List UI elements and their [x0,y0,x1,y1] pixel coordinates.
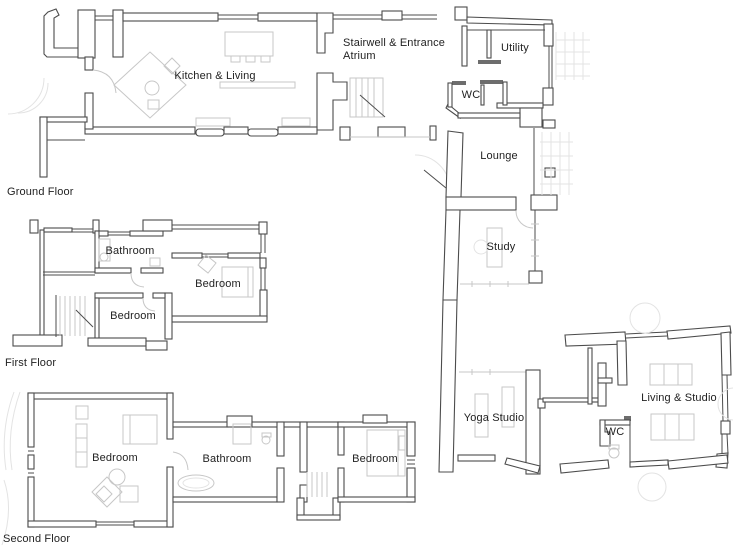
landscaping-hints [2,392,20,545]
floor-label-second: Second Floor [3,533,70,546]
room-label-utility: Utility [501,42,529,54]
second-floor-stairs [307,472,327,497]
room-label-stairwell-atrium: Stairwell & Entrance Atrium [343,37,445,63]
room-label-living-studio: Living & Studio [641,392,717,404]
room-label-wc-ground: WC [462,89,481,101]
room-label-kitchen-living: Kitchen & Living [174,70,255,82]
room-label-first-bedroom-small: Bedroom [110,310,156,322]
room-label-first-bedroom-main: Bedroom [195,278,241,290]
room-label-first-bathroom: Bathroom [106,245,155,257]
floorplan-drawing [0,0,733,560]
stairwell-label-line2: Atrium [343,50,445,63]
room-label-wc-studio: WC [606,426,625,438]
floor-label-first: First Floor [5,357,56,370]
first-floor-stairs [60,296,93,336]
room-label-second-bedroom-left: Bedroom [92,452,138,464]
room-label-yoga-studio: Yoga Studio [464,412,525,424]
stairwell-label-line1: Stairwell & Entrance [343,37,445,50]
utility-patio-hatch [556,32,590,80]
room-label-lounge: Lounge [480,150,518,162]
floor-label-ground: Ground Floor [7,186,74,199]
room-label-study: Study [487,241,516,253]
room-label-second-bedroom-right: Bedroom [352,453,398,465]
ground-floor-barn-walls [40,9,347,177]
atrium-walls [333,11,437,140]
floorplan-canvas: Kitchen & Living Stairwell & Entrance At… [0,0,733,560]
lounge-patio-hatch [540,132,573,195]
utility-block-walls [446,7,553,127]
room-label-second-bathroom: Bathroom [203,453,252,465]
